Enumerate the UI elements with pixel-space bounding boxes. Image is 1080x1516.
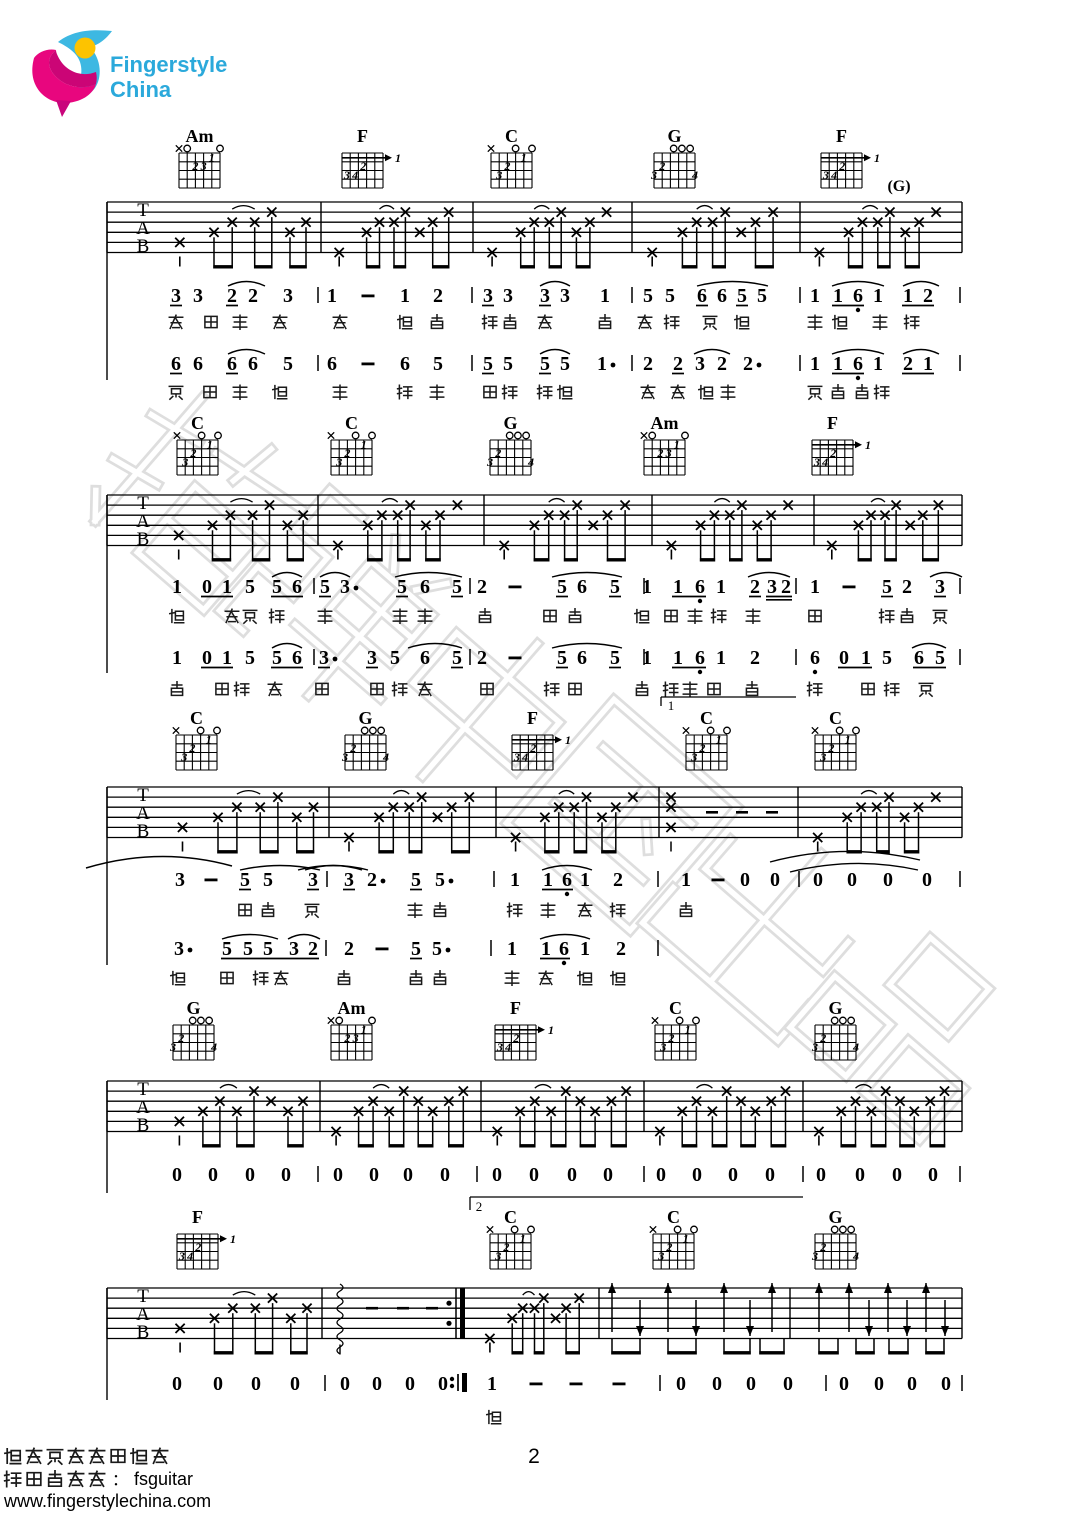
svg-text:3: 3 [513,750,520,764]
svg-text:3: 3 [494,1249,501,1263]
svg-text:0: 0 [855,1164,865,1186]
svg-text:2: 2 [343,1031,350,1045]
svg-text:6: 6 [292,576,302,598]
svg-text:1: 1 [874,151,880,165]
svg-text:1: 1 [172,647,182,669]
svg-text:G: G [358,708,372,728]
svg-text:1: 1 [716,647,726,669]
svg-text:1: 1 [810,285,820,307]
svg-text:B: B [137,529,150,550]
svg-text:5: 5 [935,647,945,669]
svg-text:1: 1 [673,576,683,598]
svg-text:6: 6 [914,647,924,669]
svg-text:1: 1 [487,1373,497,1395]
svg-text:0: 0 [438,1373,448,1395]
svg-text:1: 1 [207,437,213,451]
svg-text:1: 1 [206,732,212,746]
svg-text:0: 0 [892,1164,902,1186]
svg-text:1: 1 [548,1023,554,1037]
svg-text:6: 6 [697,285,707,307]
svg-text:2: 2 [528,1445,540,1468]
svg-text:3: 3 [289,938,299,960]
svg-text:1: 1 [222,647,232,669]
svg-text:2: 2 [502,1240,509,1254]
svg-text:C: C [667,1207,680,1227]
svg-text:2: 2 [827,741,834,755]
svg-text:2: 2 [503,159,510,173]
svg-text:0: 0 [208,1164,218,1186]
svg-text:1: 1 [716,576,726,598]
svg-text:Fingerstyle: Fingerstyle [110,52,227,77]
svg-text:3: 3 [811,1249,818,1263]
svg-text:6: 6 [562,869,572,891]
svg-text:3: 3 [819,750,826,764]
svg-text:www.fingerstylechina.com: www.fingerstylechina.com [3,1491,211,1511]
svg-text:2: 2 [529,741,536,755]
svg-text:2: 2 [477,576,487,598]
svg-text:2: 2 [512,1031,519,1045]
svg-text:3: 3 [657,1249,664,1263]
svg-text:5: 5 [263,938,273,960]
svg-text:3: 3 [352,1031,359,1045]
svg-text:5: 5 [665,285,675,307]
svg-text:2: 2 [191,159,198,173]
svg-text:1: 1 [327,285,337,307]
svg-text:1: 1 [716,732,722,746]
svg-text:1: 1 [642,647,652,669]
svg-text:5: 5 [245,576,255,598]
svg-text:6: 6 [577,576,587,598]
svg-text:1: 1 [845,732,851,746]
svg-text:1: 1 [683,1231,689,1245]
svg-text:1: 1 [810,353,820,375]
svg-text:1: 1 [673,647,683,669]
svg-text:4: 4 [521,750,528,764]
svg-text:3: 3 [341,750,348,764]
svg-text:5: 5 [610,576,620,598]
svg-text:3: 3 [690,750,697,764]
svg-text:Am: Am [338,998,366,1018]
svg-text:1: 1 [361,437,367,451]
svg-text:0: 0 [405,1373,415,1395]
svg-text:2: 2 [308,938,318,960]
svg-text:1: 1 [903,285,913,307]
svg-text:6: 6 [695,647,705,669]
svg-text:0: 0 [692,1164,702,1186]
svg-text:4: 4 [504,1040,511,1054]
svg-text:0: 0 [202,647,212,669]
svg-text:0: 0 [369,1164,379,1186]
svg-text:5: 5 [411,869,421,891]
svg-text:2: 2 [781,576,791,598]
svg-text:2: 2 [903,353,913,375]
svg-text:6: 6 [292,647,302,669]
svg-text:3: 3 [319,647,329,669]
svg-text:F: F [527,708,538,728]
svg-text:4: 4 [382,750,389,764]
svg-text:1: 1 [833,353,843,375]
svg-text:6: 6 [420,647,430,669]
svg-text:2: 2 [343,446,350,460]
svg-text:2: 2 [829,446,836,460]
svg-text:3: 3 [181,455,188,469]
svg-text:0: 0 [372,1373,382,1395]
svg-text:1: 1 [209,150,215,164]
svg-text:1: 1 [861,647,871,669]
svg-text:1: 1 [361,1022,367,1036]
svg-text:4: 4 [852,1249,859,1263]
svg-text:1: 1 [521,150,527,164]
svg-text:5: 5 [557,576,567,598]
svg-text:0: 0 [603,1164,613,1186]
svg-text:2: 2 [750,647,760,669]
svg-text:6: 6 [717,285,727,307]
svg-text:China: China [110,77,172,102]
svg-text:1: 1 [520,1231,526,1245]
svg-text:G: G [667,126,681,146]
svg-text:2: 2 [750,576,760,598]
svg-text:3: 3 [175,869,185,891]
svg-text:6: 6 [227,353,237,375]
svg-text:3: 3 [174,938,184,960]
svg-text:0: 0 [839,1373,849,1395]
svg-text:C: C [190,708,203,728]
svg-text:1: 1 [668,698,675,713]
svg-text:0: 0 [746,1373,756,1395]
svg-text:F: F [836,126,847,146]
svg-text:3: 3 [695,353,705,375]
svg-text:3: 3 [308,869,318,891]
svg-text:1: 1 [873,353,883,375]
svg-text:0: 0 [847,869,857,891]
svg-text:2: 2 [656,446,663,460]
svg-text:1: 1 [833,285,843,307]
svg-text:G: G [828,1207,842,1227]
svg-text:3: 3 [767,576,777,598]
svg-text:0: 0 [676,1373,686,1395]
svg-text:3: 3 [340,576,350,598]
svg-text:3: 3 [483,285,493,307]
svg-text:0: 0 [941,1373,951,1395]
svg-text:3: 3 [171,285,181,307]
svg-text:5: 5 [452,576,462,598]
svg-text:(G): (G) [887,178,910,195]
svg-text:0: 0 [712,1373,722,1395]
svg-text:0: 0 [740,869,750,891]
svg-text:4: 4 [186,1249,193,1263]
svg-text:6: 6 [248,353,258,375]
svg-text:4: 4 [852,1040,859,1054]
svg-text:1: 1 [395,151,401,165]
svg-text:G: G [503,413,517,433]
svg-text:2: 2 [613,869,623,891]
svg-text:0: 0 [172,1164,182,1186]
svg-text:5: 5 [222,938,232,960]
svg-text:0: 0 [290,1373,300,1395]
svg-text:2: 2 [665,1240,672,1254]
svg-text:2: 2 [838,159,845,173]
svg-text:5: 5 [452,647,462,669]
svg-text:3: 3 [200,159,207,173]
svg-text:0: 0 [728,1164,738,1186]
svg-text:4: 4 [210,1040,217,1054]
svg-text:5: 5 [643,285,653,307]
svg-text:0: 0 [213,1373,223,1395]
svg-text:C: C [504,1207,517,1227]
svg-text:1: 1 [400,285,410,307]
svg-text:1: 1 [681,869,691,891]
svg-text:3: 3 [180,750,187,764]
svg-text:5: 5 [432,938,442,960]
svg-text:1: 1 [510,869,520,891]
svg-text:2: 2 [902,576,912,598]
svg-text:4: 4 [830,168,837,182]
svg-text:3: 3 [822,168,829,182]
svg-text:6: 6 [559,938,569,960]
svg-text:0: 0 [340,1373,350,1395]
svg-text:2: 2 [189,446,196,460]
svg-text:0: 0 [202,576,212,598]
svg-text:2: 2 [494,446,501,460]
svg-text:2: 2 [476,1199,483,1214]
svg-text:5: 5 [320,576,330,598]
svg-text:5: 5 [435,869,445,891]
svg-text:3: 3 [560,285,570,307]
svg-text:2: 2 [743,353,753,375]
svg-text:3: 3 [495,168,502,182]
svg-text:0: 0 [813,869,823,891]
svg-text:2: 2 [248,285,258,307]
svg-text:5: 5 [503,353,513,375]
svg-text:2: 2 [819,1240,826,1254]
svg-text:3: 3 [503,285,513,307]
svg-text:1: 1 [597,353,607,375]
svg-text:2: 2 [698,741,705,755]
svg-text:5: 5 [882,576,892,598]
svg-text:B: B [137,236,150,257]
svg-text:0: 0 [567,1164,577,1186]
svg-text:B: B [137,1322,150,1343]
svg-text:3: 3 [344,869,354,891]
svg-text:F: F [510,998,521,1018]
svg-text:0: 0 [816,1164,826,1186]
svg-text:2: 2 [433,285,443,307]
svg-text:F: F [192,1207,203,1227]
svg-text:1: 1 [507,938,517,960]
svg-text:0: 0 [874,1373,884,1395]
svg-text:Am: Am [651,413,679,433]
svg-text:3: 3 [811,1040,818,1054]
svg-text:2: 2 [367,869,377,891]
svg-text:0: 0 [281,1164,291,1186]
svg-text:4: 4 [351,168,358,182]
svg-text:5: 5 [243,938,253,960]
svg-text:6: 6 [577,647,587,669]
svg-text:5: 5 [560,353,570,375]
svg-text:C: C [505,126,518,146]
svg-text:1: 1 [580,938,590,960]
svg-text:0: 0 [403,1164,413,1186]
svg-text:3: 3 [659,1040,666,1054]
svg-text:B: B [137,1115,150,1136]
svg-text:2: 2 [923,285,933,307]
svg-text:6: 6 [695,576,705,598]
svg-text:fsguitar: fsguitar [134,1469,193,1489]
svg-text:2: 2 [227,285,237,307]
svg-text:5: 5 [557,647,567,669]
svg-text:2: 2 [349,741,356,755]
svg-text:1: 1 [865,438,871,452]
svg-text:6: 6 [810,647,820,669]
svg-text:6: 6 [853,353,863,375]
svg-text:0: 0 [783,1373,793,1395]
svg-text:F: F [827,413,838,433]
svg-text:1: 1 [565,733,571,747]
svg-text:1: 1 [685,1022,691,1036]
svg-text:1: 1 [580,869,590,891]
svg-text:5: 5 [483,353,493,375]
svg-text:5: 5 [390,647,400,669]
svg-text:5: 5 [411,938,421,960]
svg-text:G: G [828,998,842,1018]
svg-text:6: 6 [171,353,181,375]
svg-text:5: 5 [283,353,293,375]
svg-text:4: 4 [821,455,828,469]
svg-text:0: 0 [656,1164,666,1186]
svg-text:F: F [357,126,368,146]
svg-text:1: 1 [541,938,551,960]
svg-text:3: 3 [813,455,820,469]
svg-text:1: 1 [543,869,553,891]
svg-text:1: 1 [810,576,820,598]
svg-text:6: 6 [400,353,410,375]
svg-text:：: ： [112,1472,128,1489]
svg-text:2: 2 [177,1031,184,1045]
svg-text:3: 3 [496,1040,503,1054]
svg-text:5: 5 [397,576,407,598]
svg-text:B: B [137,821,150,842]
svg-text:3: 3 [283,285,293,307]
svg-text:2: 2 [194,1240,201,1254]
svg-text:3: 3 [343,168,350,182]
svg-text:3: 3 [193,285,203,307]
svg-text:C: C [700,708,713,728]
svg-text:3: 3 [486,455,493,469]
svg-text:C: C [345,413,358,433]
svg-text:2: 2 [344,938,354,960]
svg-text:1: 1 [230,1232,236,1246]
svg-text:5: 5 [272,576,282,598]
svg-text:0: 0 [529,1164,539,1186]
svg-text:Am: Am [186,126,214,146]
svg-text:5: 5 [433,353,443,375]
svg-text:6: 6 [853,285,863,307]
svg-text:0: 0 [333,1164,343,1186]
svg-text:0: 0 [928,1164,938,1186]
svg-text:3: 3 [178,1249,185,1263]
svg-text:5: 5 [240,869,250,891]
svg-text:1: 1 [222,576,232,598]
svg-text:C: C [191,413,204,433]
svg-text:3: 3 [335,455,342,469]
svg-text:3: 3 [935,576,945,598]
svg-text:G: G [186,998,200,1018]
svg-text:0: 0 [492,1164,502,1186]
svg-text:4: 4 [527,455,534,469]
svg-text:0: 0 [765,1164,775,1186]
svg-text:1: 1 [172,576,182,598]
svg-text:0: 0 [245,1164,255,1186]
svg-text:3: 3 [665,446,672,460]
svg-text:0: 0 [907,1373,917,1395]
svg-text:2: 2 [819,1031,826,1045]
svg-text:6: 6 [420,576,430,598]
svg-text:0: 0 [839,647,849,669]
svg-text:6: 6 [193,353,203,375]
svg-text:5: 5 [610,647,620,669]
svg-text:0: 0 [172,1373,182,1395]
svg-text:1: 1 [642,576,652,598]
svg-text:3: 3 [540,285,550,307]
svg-text:2: 2 [717,353,727,375]
svg-text:3: 3 [367,647,377,669]
svg-text:5: 5 [737,285,747,307]
svg-text:2: 2 [658,159,665,173]
svg-text:0: 0 [251,1373,261,1395]
svg-text:0: 0 [922,869,932,891]
svg-text:0: 0 [770,869,780,891]
svg-text:1: 1 [923,353,933,375]
svg-text:5: 5 [882,647,892,669]
svg-text:5: 5 [245,647,255,669]
svg-text:2: 2 [673,353,683,375]
svg-text:0: 0 [883,869,893,891]
svg-text:2: 2 [477,647,487,669]
svg-text:1: 1 [600,285,610,307]
svg-text:5: 5 [757,285,767,307]
svg-text:2: 2 [643,353,653,375]
svg-text:2: 2 [188,741,195,755]
svg-text:2: 2 [616,938,626,960]
svg-text:2: 2 [667,1031,674,1045]
svg-text:C: C [829,708,842,728]
svg-text:4: 4 [691,168,698,182]
svg-text:5: 5 [272,647,282,669]
svg-text:1: 1 [674,437,680,451]
svg-text:C: C [669,998,682,1018]
svg-text:5: 5 [540,353,550,375]
svg-text:3: 3 [650,168,657,182]
svg-text:2: 2 [359,159,366,173]
svg-text:1: 1 [873,285,883,307]
svg-text:3: 3 [169,1040,176,1054]
svg-text:6: 6 [327,353,337,375]
svg-text:5: 5 [263,869,273,891]
svg-text:0: 0 [440,1164,450,1186]
